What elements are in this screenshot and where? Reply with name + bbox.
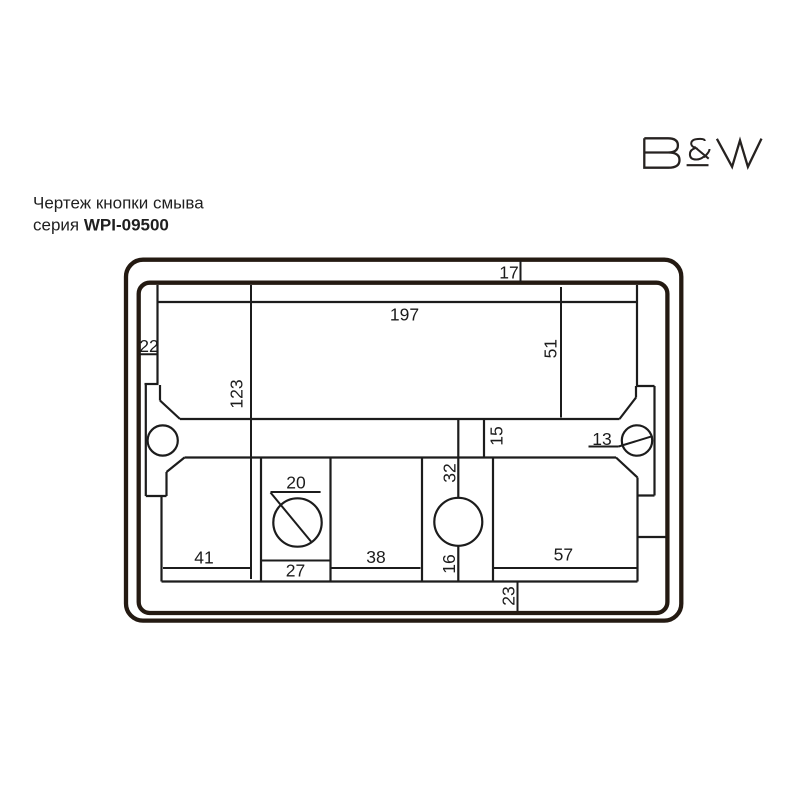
svg-text:серия WPI-09500: серия WPI-09500: [33, 215, 169, 234]
svg-text:51: 51: [541, 339, 561, 358]
svg-text:17: 17: [499, 263, 518, 283]
svg-text:13: 13: [592, 429, 611, 449]
svg-text:16: 16: [439, 554, 459, 573]
svg-text:15: 15: [487, 426, 507, 445]
svg-text:23: 23: [499, 586, 519, 605]
svg-text:41: 41: [194, 547, 213, 567]
svg-text:57: 57: [554, 544, 573, 564]
svg-text:123: 123: [227, 379, 247, 408]
svg-text:20: 20: [286, 472, 306, 492]
svg-text:38: 38: [366, 547, 385, 567]
svg-text:32: 32: [440, 463, 460, 482]
svg-text:Чертеж кнопки смыва: Чертеж кнопки смыва: [33, 194, 204, 213]
svg-text:197: 197: [390, 305, 419, 325]
svg-text:27: 27: [286, 561, 305, 581]
svg-text:22: 22: [139, 336, 158, 356]
